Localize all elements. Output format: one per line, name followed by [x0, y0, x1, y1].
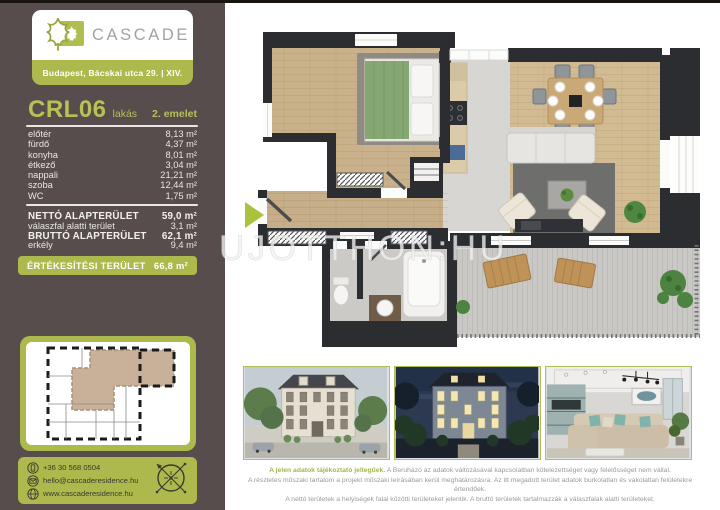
radiator: [337, 173, 383, 186]
unit-type: lakás: [113, 108, 138, 120]
compass-icon: [151, 458, 191, 503]
contact-website: www.cascaderesidence.hu: [43, 489, 133, 498]
address-text: Budapest, Bácskai utca 29. | XIV.: [42, 68, 182, 78]
phone-icon: [27, 462, 39, 474]
disclaimer-line-1: A jelen adatok tájékoztató jellegűek. A …: [240, 466, 700, 476]
divider: [26, 125, 198, 127]
room-list: előtér8,13 m² fürdő4,37 m² konyha8,01 m²…: [28, 129, 197, 201]
globe-icon: [27, 488, 39, 500]
sales-area-bar: ÉRTÉKESÍTÉSI TERÜLET 66,8 m²: [18, 256, 197, 275]
brand-name: CASCADE: [92, 26, 190, 45]
disclaimer: A jelen adatok tájékoztató jellegűek. A …: [240, 466, 700, 504]
tv-console: [515, 219, 583, 232]
disclaimer-line-2: A részletes műszaki tartalom a projekt m…: [240, 476, 700, 495]
sidebar: CASCADE Budapest, Bácskai utca 29. | XIV…: [0, 3, 225, 510]
bed: [357, 51, 451, 149]
sofa: [507, 127, 595, 163]
room-row: előtér8,13 m²: [28, 129, 197, 139]
area-totals: NETTÓ ALAPTERÜLET59,0 m² válaszfal alatt…: [28, 212, 197, 251]
contact-phone-row: +36 30 568 0504: [27, 461, 151, 474]
unit-code: CRL06: [28, 96, 107, 124]
unit-floor: 2. emelet: [152, 108, 197, 120]
room-row: nappali21,21 m²: [28, 170, 197, 180]
contact-card: +36 30 568 0504 hello@cascaderesidence.h…: [18, 457, 197, 504]
building-plan-card: [20, 336, 196, 451]
brochure-page: CASCADE Budapest, Bácskai utca 29. | XIV…: [0, 0, 720, 510]
contact-phone: +36 30 568 0504: [43, 463, 100, 472]
unit-header: CRL06 lakás 2. emelet: [28, 96, 197, 124]
room-row: szoba12,44 m²: [28, 180, 197, 190]
photo-building-night: [394, 366, 541, 460]
bathtub: [403, 251, 445, 317]
bathroom-vanity: [369, 295, 401, 321]
sales-area-value: 66,8 m²: [154, 261, 188, 271]
plant: [624, 201, 646, 223]
logo-card: CASCADE: [32, 10, 193, 60]
room-row: étkező3,04 m²: [28, 160, 197, 170]
address-bar: Budapest, Bácskai utca 29. | XIV.: [32, 60, 193, 85]
room-row: WC1,75 m²: [28, 191, 197, 201]
total-row: erkély9,4 m²: [28, 241, 197, 251]
disclaimer-line-3: A nettó területek a helyiségek falai köz…: [240, 495, 700, 505]
toilet: [333, 277, 349, 305]
building-plan-thumbnail: [26, 342, 190, 445]
sales-area-label: ÉRTÉKESÍTÉSI TERÜLET: [27, 261, 146, 271]
floor-plan-render: [245, 5, 705, 360]
radiator: [268, 231, 326, 244]
contact-email: hello@cascaderesidence.hu: [43, 476, 139, 485]
cascade-leaf-icon: [42, 14, 86, 57]
divider: [26, 204, 198, 206]
contact-website-row: www.cascaderesidence.hu: [27, 487, 151, 500]
contact-email-row: hello@cascaderesidence.hu: [27, 474, 151, 487]
room-row: konyha8,01 m²: [28, 150, 197, 160]
radiator: [391, 231, 427, 244]
room-row: fürdő4,37 m²: [28, 139, 197, 149]
photo-interior: [545, 366, 692, 460]
photo-building-day: [243, 366, 390, 460]
email-icon: [27, 475, 39, 487]
